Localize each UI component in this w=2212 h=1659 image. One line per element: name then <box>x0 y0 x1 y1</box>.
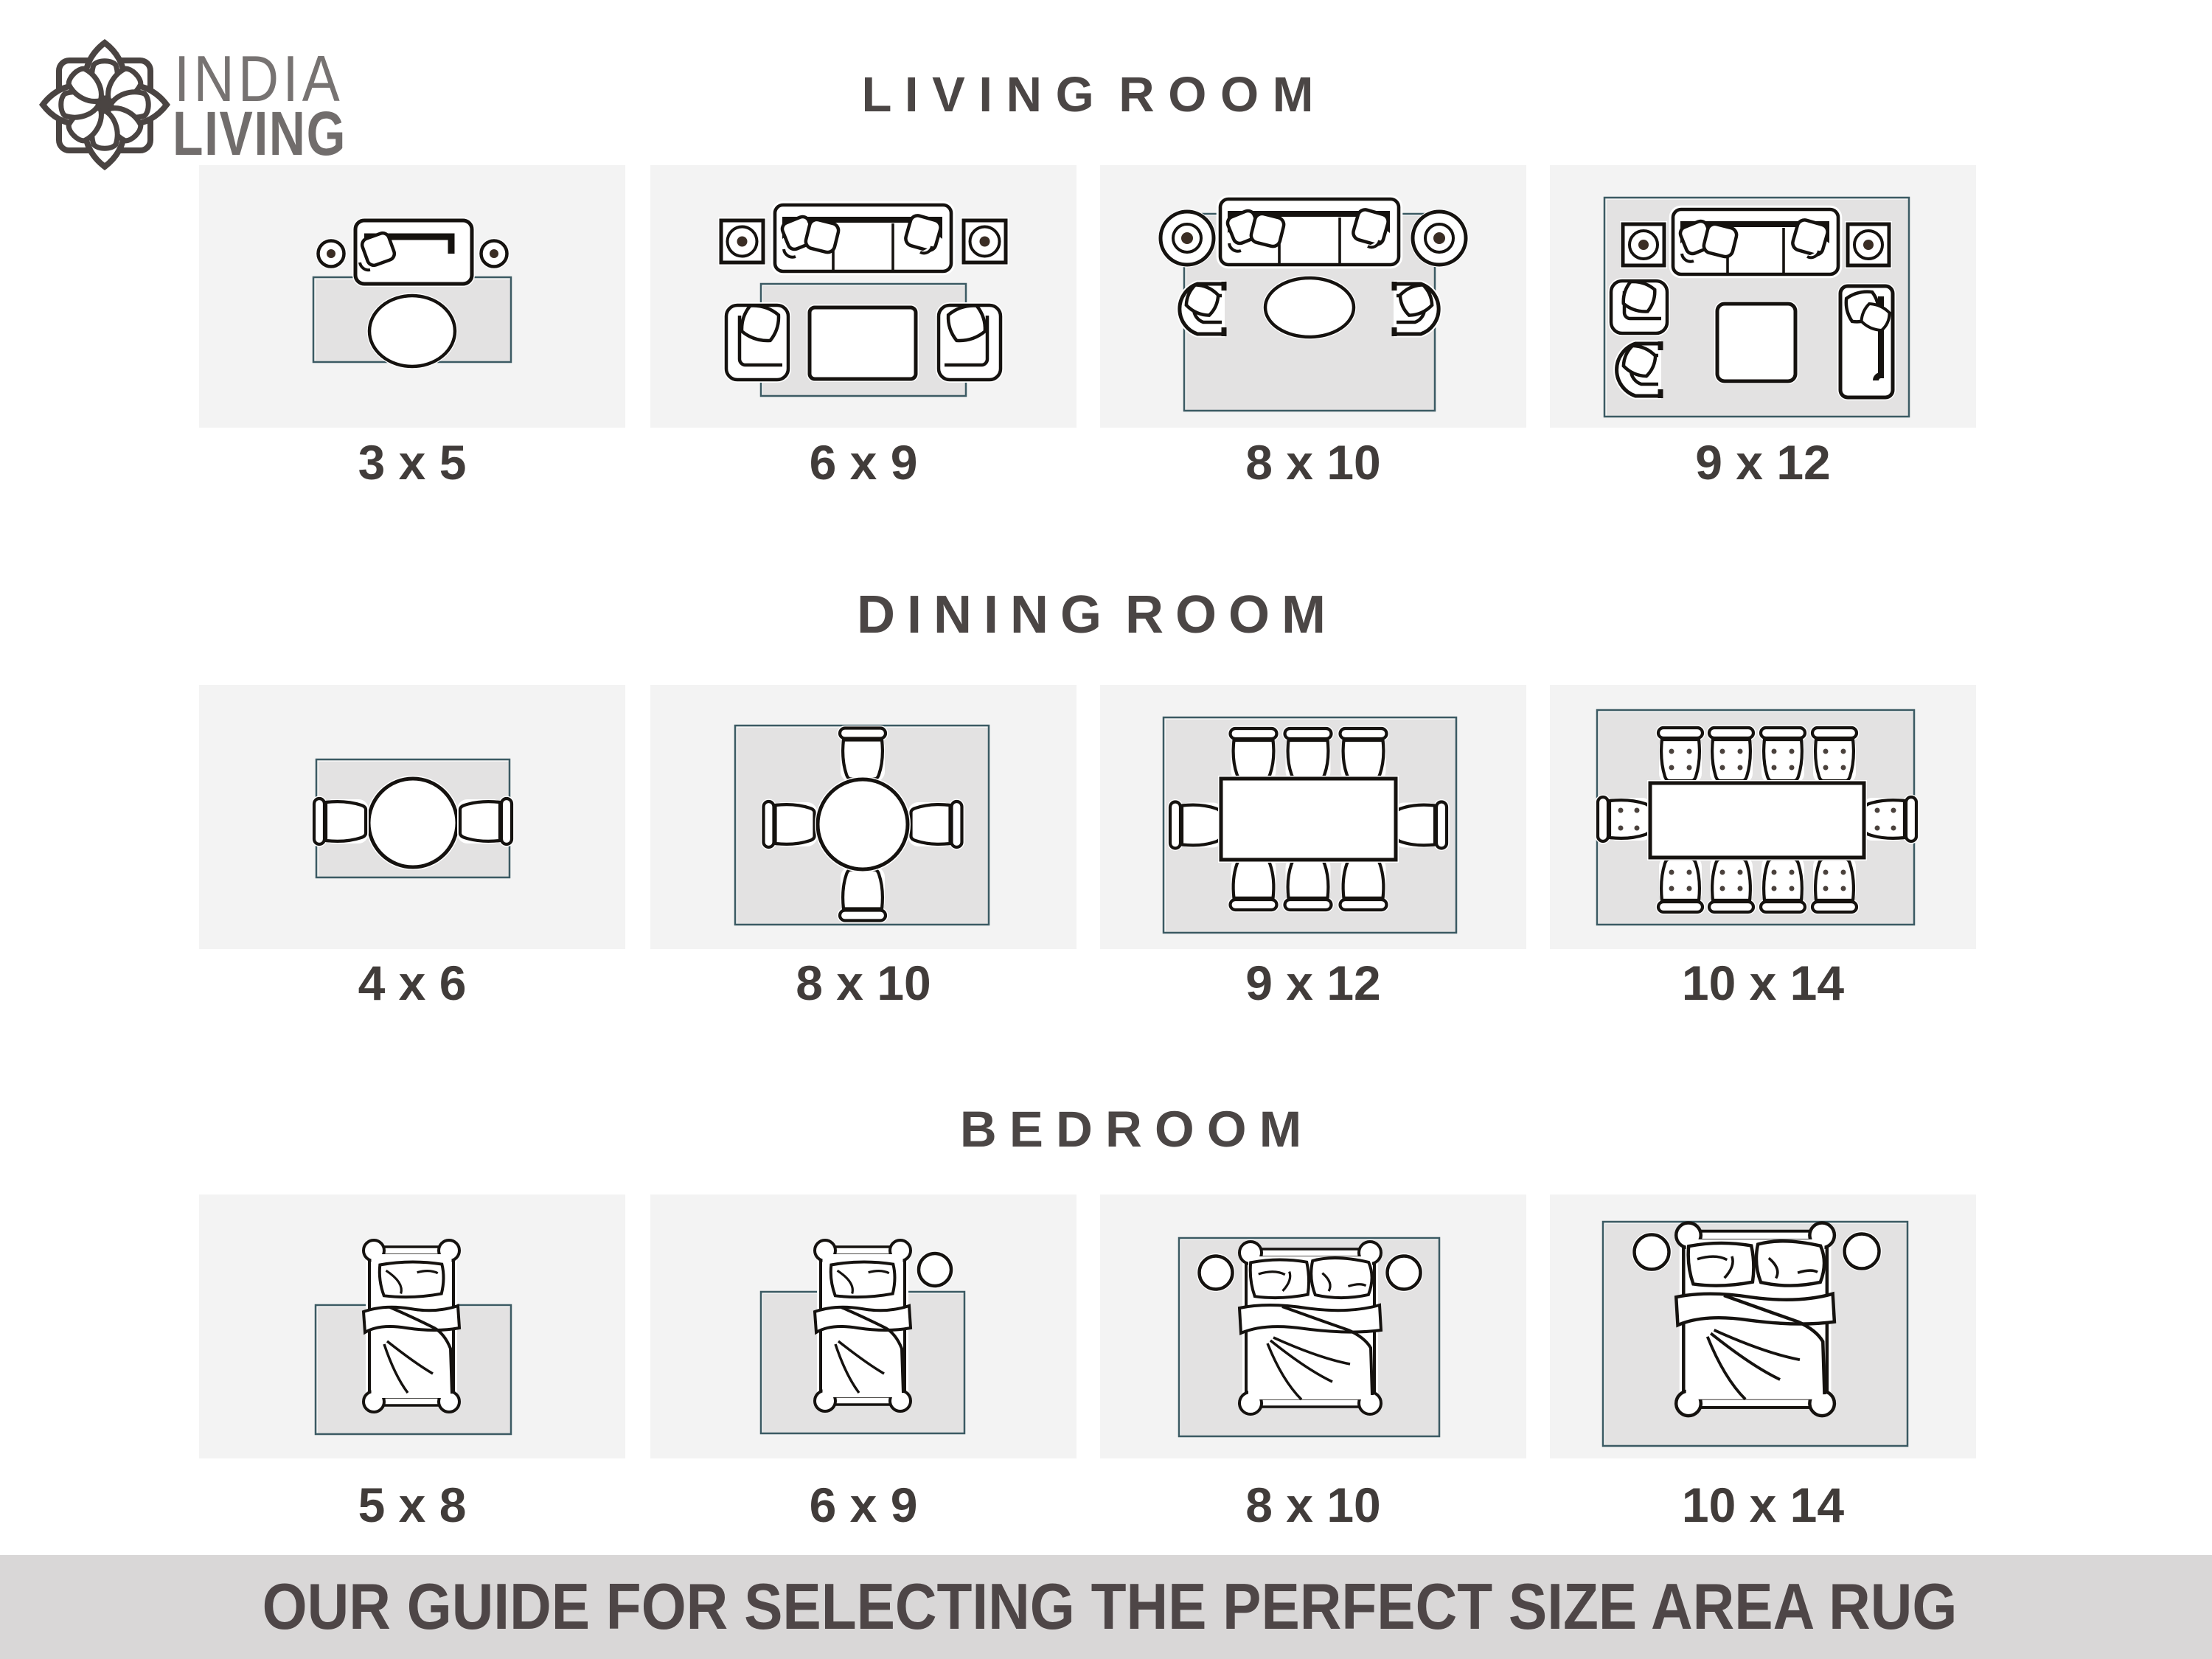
svg-text:LIVING: LIVING <box>173 99 347 168</box>
